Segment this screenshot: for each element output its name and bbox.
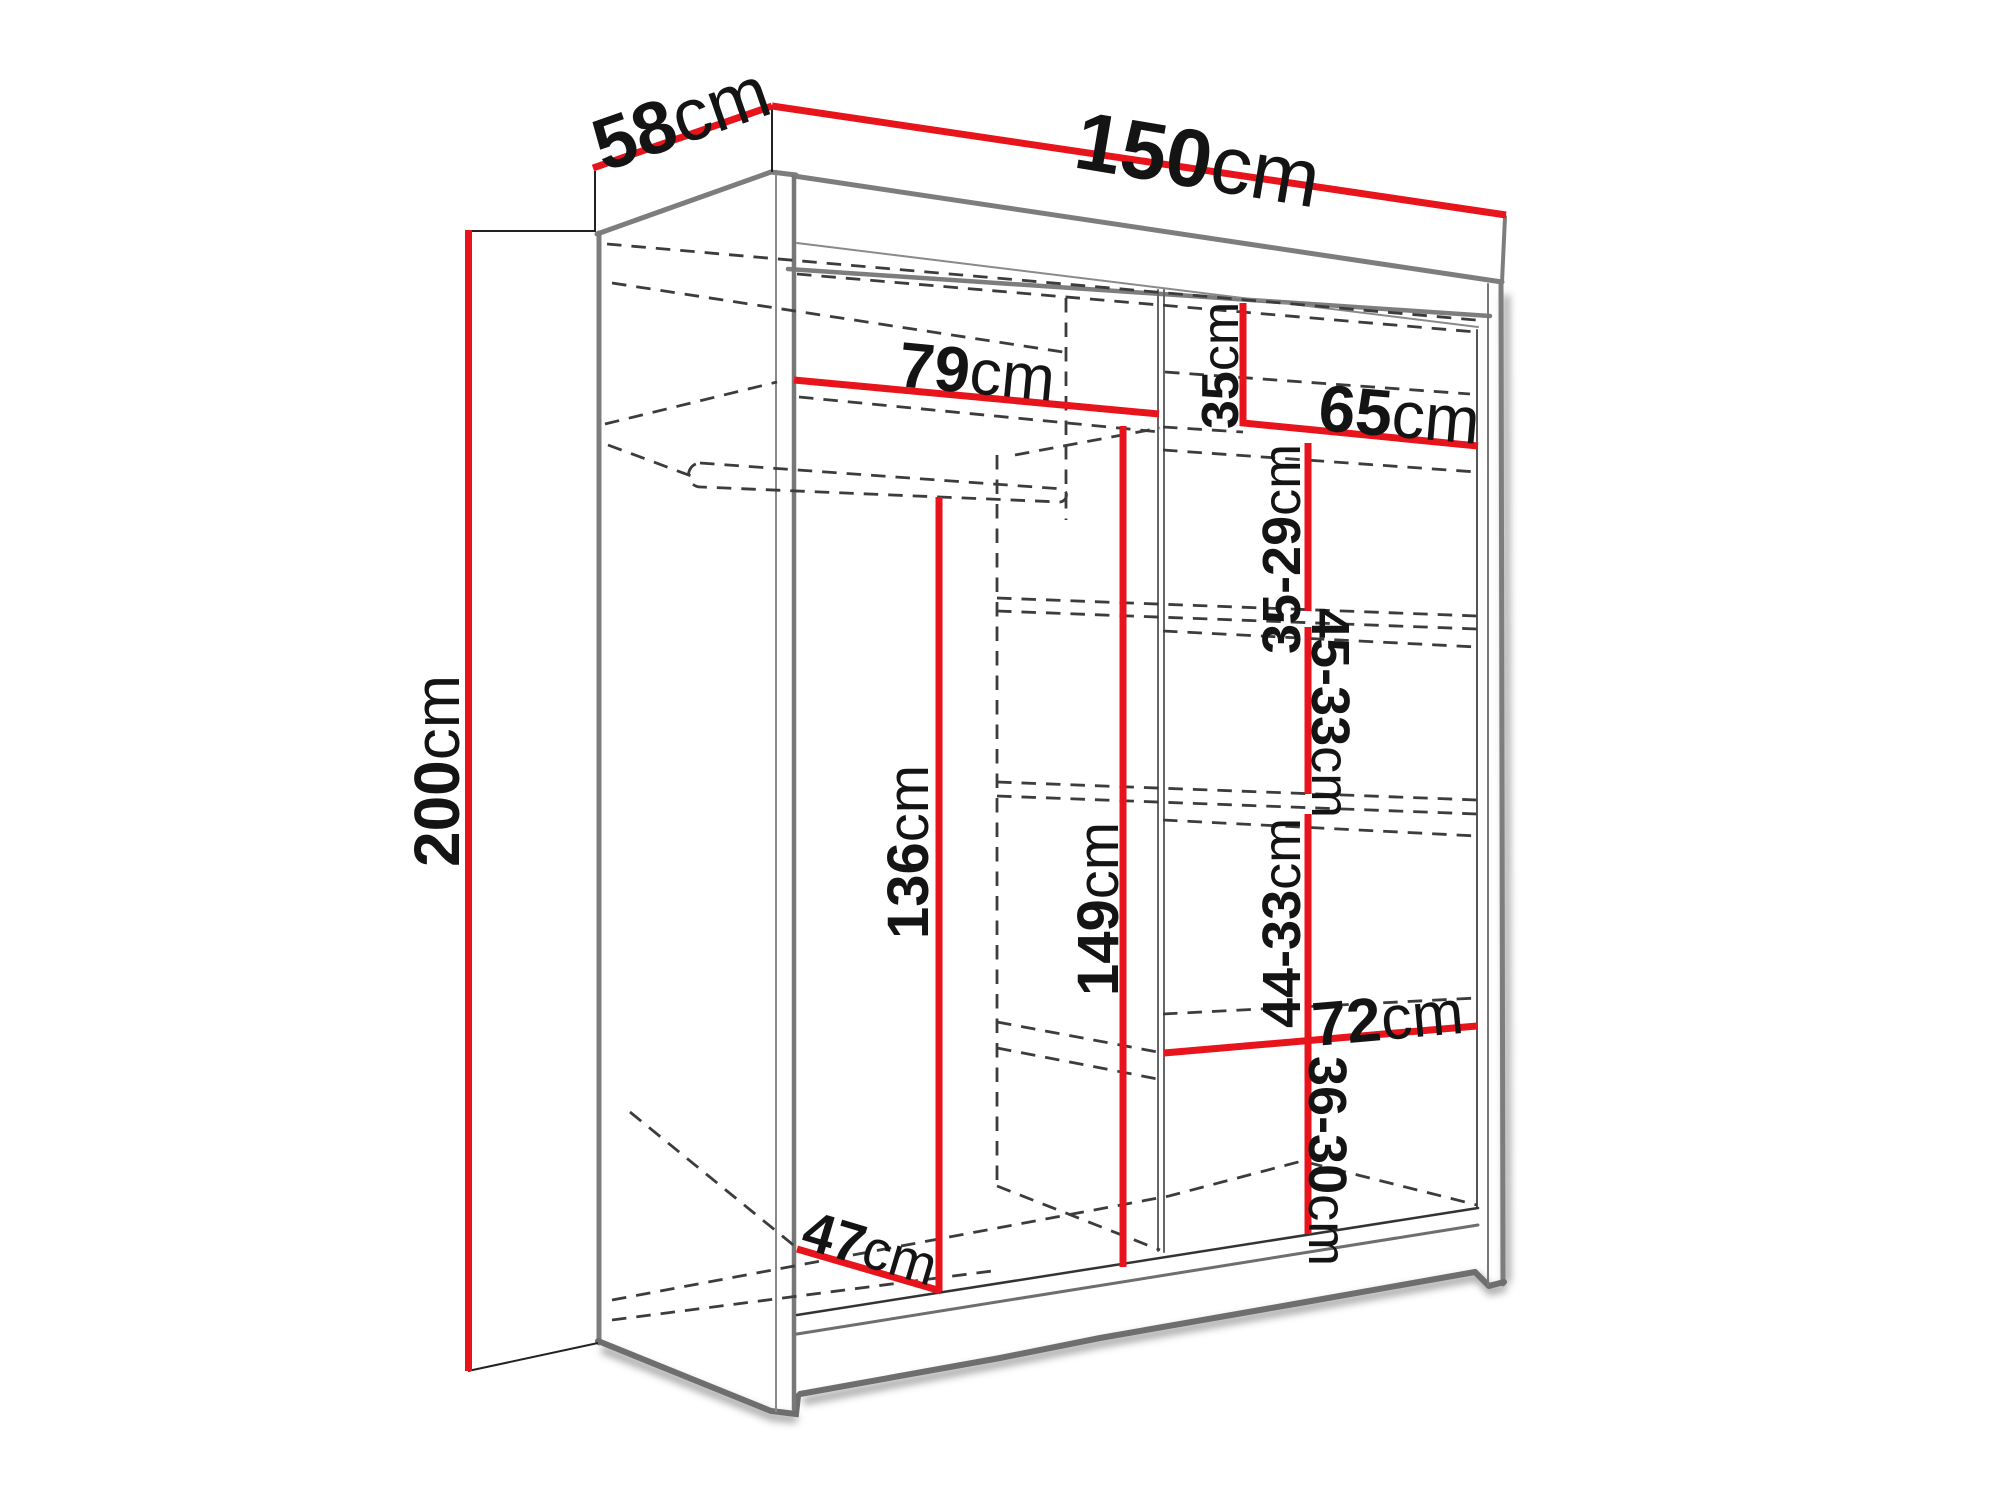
svg-text:58cm: 58cm: [582, 49, 780, 187]
svg-text:136cm: 136cm: [876, 765, 941, 939]
svg-text:35cm: 35cm: [1192, 302, 1250, 429]
svg-text:65cm: 65cm: [1316, 370, 1483, 458]
svg-text:44-33cm: 44-33cm: [1252, 818, 1312, 1028]
svg-text:79cm: 79cm: [896, 328, 1059, 415]
svg-text:36-30cm: 36-30cm: [1297, 1056, 1357, 1266]
svg-text:149cm: 149cm: [1066, 822, 1131, 996]
svg-text:72cm: 72cm: [1309, 978, 1466, 1060]
svg-text:47cm: 47cm: [796, 1198, 945, 1298]
svg-text:45-33cm: 45-33cm: [1300, 608, 1360, 818]
svg-text:200cm: 200cm: [401, 675, 473, 867]
svg-text:150cm: 150cm: [1069, 95, 1327, 225]
